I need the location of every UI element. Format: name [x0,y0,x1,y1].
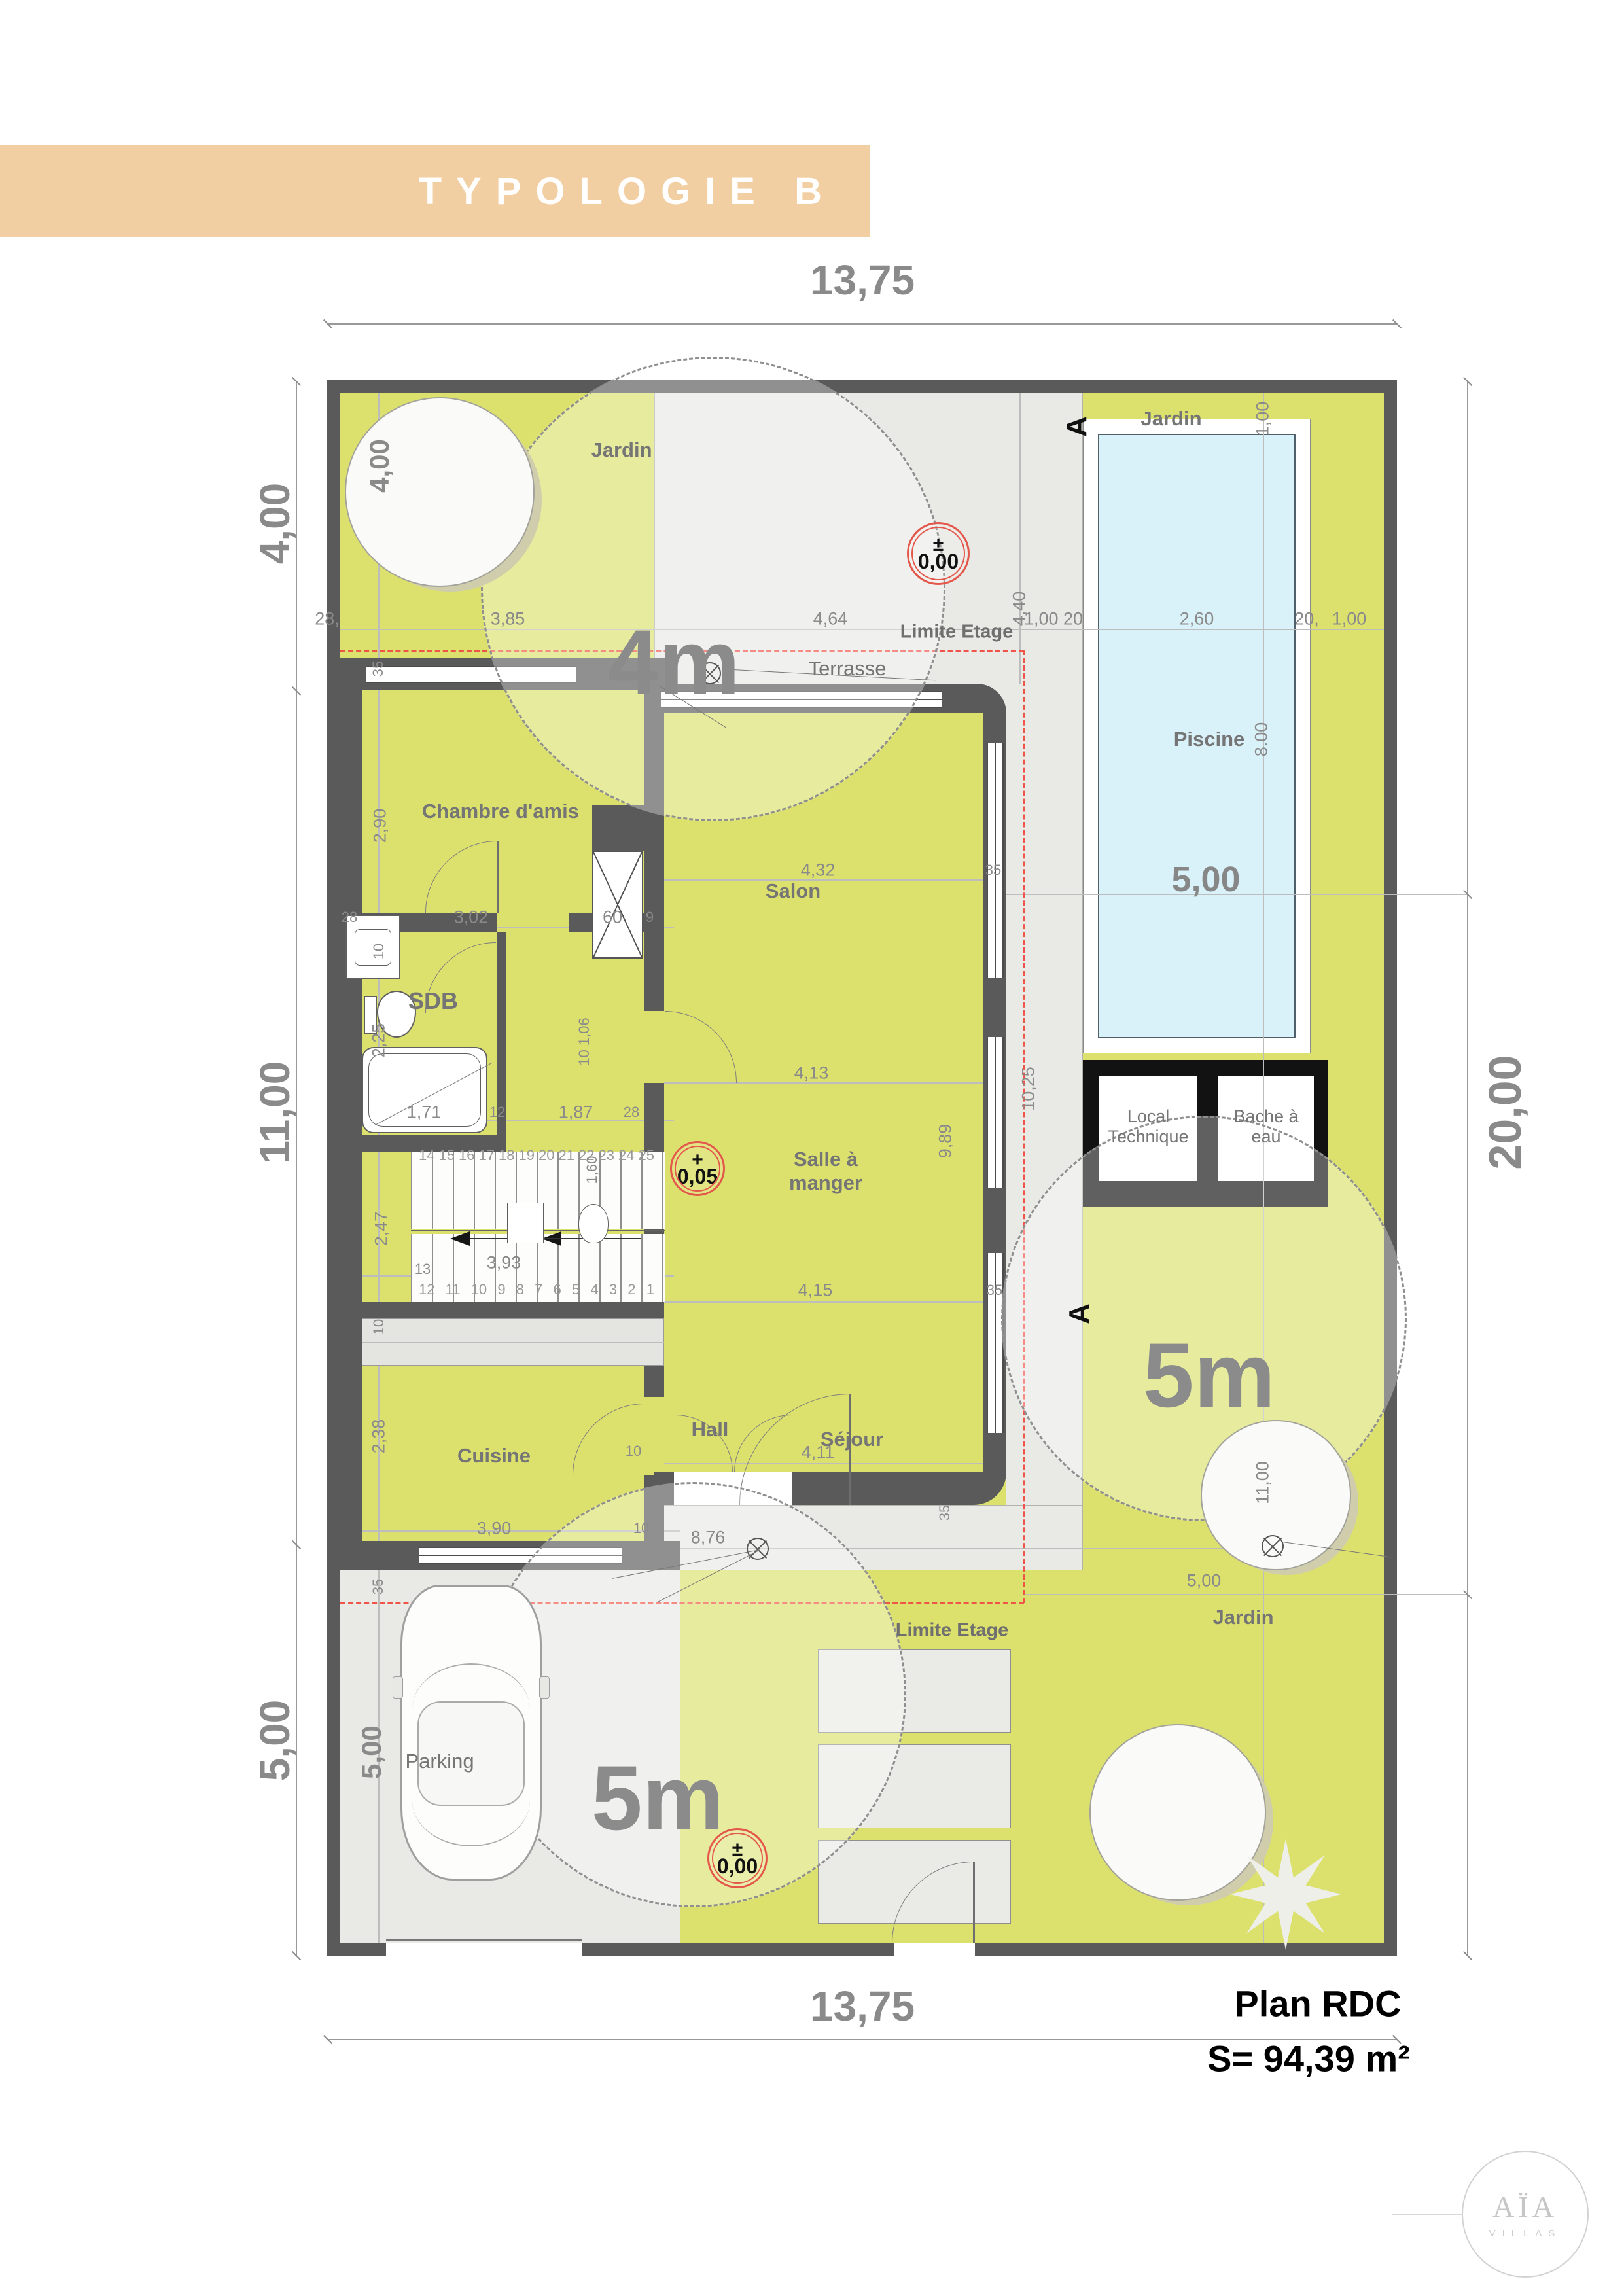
dim: 4,13 [794,1063,829,1084]
level-value: 0,05 [677,1168,718,1186]
stair-number: 7 [535,1281,542,1298]
wc-sink [507,1203,544,1243]
room-label-terrasse: Terrasse [809,657,887,680]
room-label-bache: Bache à eau [1227,1106,1305,1147]
limite-etage-label: Limite Etage [896,1620,1008,1642]
dim-line [664,1301,1006,1303]
plan-surface: S= 94,39 m² [1207,2038,1410,2080]
stairs-lower-numbers: 121110987654321 [419,1281,654,1298]
dim: 12 [489,1104,505,1121]
stair-direction-arrow [450,1231,470,1246]
stair-number: 16 [459,1147,474,1164]
stair-number: 8 [516,1281,524,1298]
dim: 60 [603,908,622,928]
room-label-parking: Parking [405,1750,474,1773]
dim: 10 1,06 [576,1017,593,1065]
dim-left-5: 5,00 [251,1700,299,1782]
dim: 3,02 [454,908,489,928]
stair-landing-number: 13 [415,1261,431,1278]
stair-number: 19 [519,1147,535,1164]
stairs-upper-numbers: 141516171819202122232425 [419,1147,654,1164]
dim: 20, [1294,609,1319,629]
door-leaf [497,841,499,913]
dim: 1,00 20 [1024,609,1083,629]
dim: 8.00 [1252,722,1272,757]
dim: 4,15 [798,1280,833,1301]
dim: 4,00 [364,439,395,493]
brand-name: AÏA [1492,2189,1558,2224]
dim: 2,47 [372,1212,392,1246]
zone-label-5m: 5m [1143,1322,1275,1428]
section-marker-a: A [1061,416,1093,437]
stair-number: 5 [572,1281,580,1298]
stair-number: 20 [538,1147,554,1164]
room-label-salle: Salle à manger [760,1148,891,1195]
stair-number: 18 [499,1147,514,1164]
boundary-wall-top [327,380,1397,393]
car-mirror-left [393,1676,403,1699]
boundary-wall-right [1384,380,1397,1956]
car-mirror-right [539,1676,550,1699]
title-banner: TYPOLOGIE B [0,145,870,237]
window-east-3 [987,1253,1004,1433]
outer-dim-line-top [327,323,1397,325]
dim-line [378,393,380,1943]
level-sign: + [692,1152,703,1169]
setback-circle-4m [481,357,945,821]
wall-west [340,658,362,1570]
dim: 1,00 [1332,609,1367,629]
dim: 1,60 [584,1156,601,1184]
footer-rule [1392,2214,1462,2215]
wall-closet-top [592,805,644,851]
garden-label: Jardin [591,438,652,462]
dim: 2,25 [369,1023,389,1058]
stair-number: 3 [609,1281,617,1298]
dim: 10 [370,944,387,959]
dim-left-4: 4,00 [251,483,299,565]
level-marker: ± 0,00 [907,522,970,585]
stair-number: 6 [554,1281,561,1298]
stair-number: 10 [471,1281,487,1298]
limite-etage-line-right [1023,650,1025,1603]
window-east-2 [987,1037,1004,1188]
dim: 28 [342,909,357,926]
plan-title: Plan RDC [1234,1983,1401,2025]
stair-number: 23 [599,1147,614,1164]
level-marker: + 0,05 [670,1141,725,1196]
dim: 10,25 [1019,1067,1039,1111]
gate-door-leaf [973,1862,975,1943]
kitchen-counter-line [362,1342,664,1343]
dim: 35 [985,862,1001,879]
dim-line [1019,393,1021,684]
stair-number: 15 [439,1147,455,1164]
wc-toilet [578,1204,609,1243]
dim: 10 [370,1319,387,1335]
dim: 3,93 [487,1253,521,1273]
garden-label: Jardin [1140,407,1201,431]
dim-right-20: 20,00 [1479,1055,1531,1169]
stair-number: 1 [646,1281,654,1298]
dim: 9,89 [936,1124,956,1159]
brand-sub: VILLAS [1489,2228,1562,2239]
pedestrian-gate-opening [894,1943,975,1956]
dim: 1,87 [559,1103,593,1123]
car-gate-opening [386,1943,582,1956]
stair-number: 4 [590,1281,598,1298]
car-icon [400,1585,542,1881]
dim: 10 [633,1520,649,1537]
zone-label-4m: 4m [608,609,740,715]
room-label-chambre: Chambre d'amis [422,800,579,823]
section-marker-a: A [1063,1303,1096,1324]
floor-plan-sheet: TYPOLOGIE B [0,0,1624,2296]
stair-number: 25 [639,1147,654,1164]
survey-point-icon [747,1538,769,1560]
dim: 28 [624,1104,639,1121]
garden-label: Jardin [1212,1606,1273,1629]
stair-number: 17 [479,1147,495,1164]
car-gate-line [386,1939,582,1941]
dim: 4,64 [813,609,848,629]
dim: 5,00 [356,1725,387,1779]
dim: 3,90 [477,1519,512,1539]
stair-number: 12 [419,1281,434,1298]
level-value: 0,00 [717,1858,758,1875]
outer-dim-line-right [1467,381,1468,1956]
level-value: 0,00 [918,553,959,571]
stair-arrow-line [470,1238,641,1239]
stair-number: 11 [446,1281,461,1298]
dim: 5,00 [1187,1571,1222,1591]
dim: 2,38 [369,1419,389,1454]
survey-point-icon [1262,1535,1284,1557]
stair-number: 9 [497,1281,505,1298]
dim: 35 [987,1282,1002,1299]
page-title: TYPOLOGIE B [419,169,836,213]
dim: 2,90 [370,809,391,843]
dim: 35 [370,1579,387,1595]
dim: 4,40 [1010,592,1030,626]
setback-circle-5m-east [1001,1116,1407,1521]
dim: 1,71 [407,1103,442,1123]
dim: 35 [936,1505,953,1521]
dim-line [1024,1594,1467,1595]
level-sign: ± [933,537,944,554]
wall-cuisine-north [340,1302,664,1318]
tree-icon [1089,1724,1266,1901]
stair-number: 21 [559,1147,574,1164]
dim-left-11: 11,00 [251,1061,299,1164]
dim: 10 [626,1443,641,1460]
room-label-salon: Salon [766,879,821,903]
dim: 28, [315,609,340,629]
dim: 4,11 [802,1443,835,1463]
room-label-local: Local Technique [1099,1106,1197,1147]
dim: 8,76 [691,1528,726,1548]
dim: 11,00 [1253,1461,1273,1504]
dim-line [664,879,1006,881]
dim: 2,60 [1180,609,1214,629]
stair-number: 24 [618,1147,634,1164]
limite-etage-label: Limite Etage [900,622,1013,643]
room-label-sdb: SDB [408,987,458,1015]
dim-total-bottom: 13,75 [810,1982,915,2030]
dim: 35 [370,661,387,677]
room-label-piscine: Piscine [1174,728,1245,751]
room-label-hall: Hall [692,1418,729,1441]
brand-logo: AÏA VILLAS [1462,2151,1589,2278]
dim: 9 [646,909,654,926]
dim: 3,85 [491,609,525,629]
wardrobe [592,851,643,959]
dim: 1,00 [1253,402,1273,436]
dim: 5,00 [1171,859,1240,900]
stair-number: 14 [419,1147,434,1164]
stair-number: 2 [627,1281,635,1298]
zone-label-5m: 5m [591,1745,724,1851]
dim: 4,32 [801,860,836,881]
room-label-cuisine: Cuisine [457,1444,531,1468]
window-east-1 [987,743,1004,978]
tree-icon [1230,1839,1341,1950]
level-sign: ± [732,1841,743,1858]
dim-total-top: 13,75 [810,256,915,304]
